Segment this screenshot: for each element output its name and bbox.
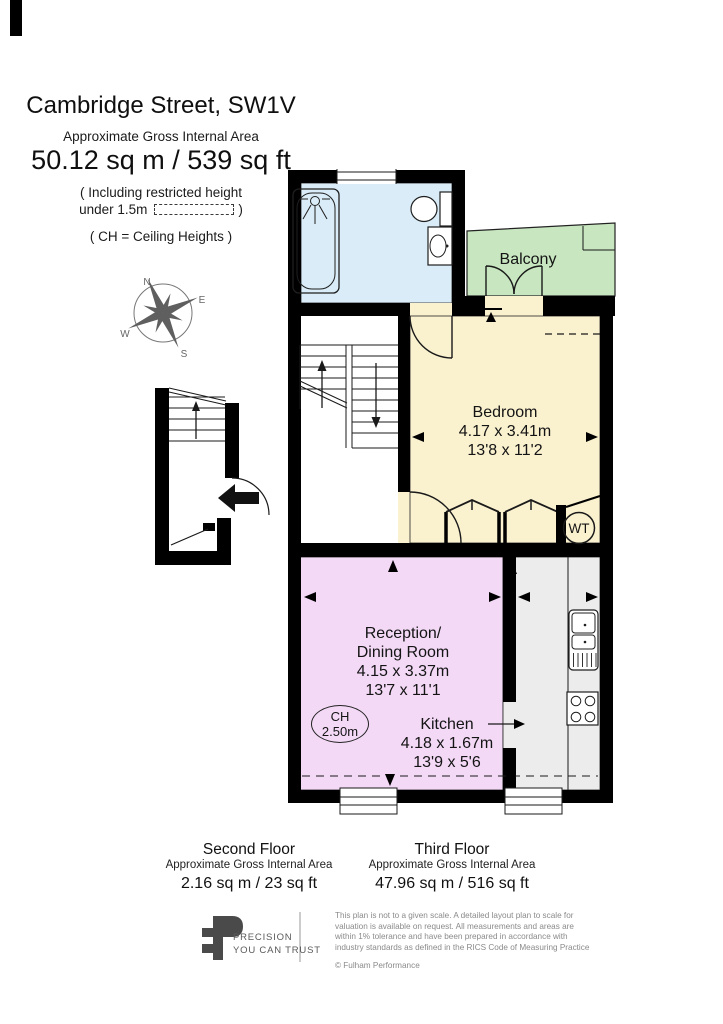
wall-bedroom-bottom xyxy=(398,543,613,557)
bathroom-door-threshold xyxy=(410,303,452,316)
wall-kitchen-divider-upper xyxy=(503,557,516,702)
note-line2-text: under 1.5m xyxy=(79,202,147,217)
stairs-main xyxy=(300,345,398,448)
brand-line1: PRECISION xyxy=(233,931,321,944)
stairs-up-arrow xyxy=(318,360,327,371)
reception-dim-imperial: 13'7 x 11'1 xyxy=(303,681,503,700)
reception-label-line2: Dining Room xyxy=(303,643,503,662)
wall-left xyxy=(288,170,301,803)
miniplan-inner-door-leaf xyxy=(171,529,208,545)
reception-label-line1: Reception/ xyxy=(303,624,503,643)
second-floor-miniplan xyxy=(155,388,269,565)
bathroom-window xyxy=(337,169,396,184)
compass-icon: N E W S xyxy=(113,263,213,363)
corner-mark xyxy=(10,0,22,36)
dashed-legend-box xyxy=(154,204,234,215)
copyright: © Fulham Performance xyxy=(335,961,615,972)
balcony-threshold xyxy=(485,296,543,316)
disclaimer-line3: within 1% tolerance and have been prepar… xyxy=(335,932,615,943)
bedroom-dim-metric: 4.17 x 3.41m xyxy=(410,422,600,441)
disclaimer-line2: valuation is available on request. All m… xyxy=(335,922,615,933)
ceiling-height-line2: 2.50m xyxy=(312,724,368,739)
miniplan-stairs-up-arrow xyxy=(192,401,200,411)
kitchen-sink xyxy=(569,610,598,670)
bedroom-label-block: Bedroom 4.17 x 3.41m 13'8 x 11'2 xyxy=(410,403,600,460)
note-line2-paren: ) xyxy=(238,202,243,217)
entrance-arrow-icon xyxy=(218,484,259,512)
third-floor-area: 47.96 sq m / 516 sq ft xyxy=(331,875,573,893)
compass-north-label: N xyxy=(143,277,150,288)
disclaimer: This plan is not to a given scale. A det… xyxy=(335,911,615,972)
kitchen-dim-imperial: 13'9 x 5'6 xyxy=(392,753,502,772)
kitchen-label-block: Kitchen 4.18 x 1.67m 13'9 x 5'6 xyxy=(392,715,502,772)
third-floor-summary: Third Floor Approximate Gross Internal A… xyxy=(331,841,573,893)
reception-dim-metric: 4.15 x 3.37m xyxy=(303,662,503,681)
compass-east-label: E xyxy=(199,295,206,306)
wall-bottom-seg1 xyxy=(288,790,340,803)
kitchen-label: Kitchen xyxy=(392,715,502,734)
reception-window xyxy=(340,788,397,814)
wall-balcony-left-seg xyxy=(452,296,485,316)
reception-label-block: Reception/ Dining Room 4.15 x 3.37m 13'7… xyxy=(303,624,503,700)
disclaimer-line1: This plan is not to a given scale. A det… xyxy=(335,911,615,922)
third-floor-name: Third Floor xyxy=(331,841,573,858)
compass-west-label: W xyxy=(120,329,130,340)
kitchen-floor xyxy=(503,557,600,790)
restricted-height-note-line1: ( Including restricted height xyxy=(1,184,321,201)
ceiling-height-line1: CH xyxy=(312,709,368,724)
wall-bottom-seg2 xyxy=(397,790,505,803)
total-area: 50.12 sq m / 539 sq ft xyxy=(1,145,321,175)
page-title: Cambridge Street, SW1V xyxy=(1,92,321,120)
bedroom-label: Bedroom xyxy=(410,403,600,422)
ceiling-height-note: ( CH = Ceiling Heights ) xyxy=(1,228,321,245)
bedroom-door-threshold xyxy=(398,492,410,543)
restricted-height-note-line2: under 1.5m) xyxy=(1,201,321,218)
disclaimer-line4: industry standards as defined in the RIC… xyxy=(335,943,615,954)
wall-reception-top xyxy=(288,543,400,557)
brand-line2: YOU CAN TRUST xyxy=(233,944,321,957)
wall-bottom-seg3 xyxy=(562,790,613,803)
ceiling-height-badge: CH 2.50m xyxy=(311,705,369,743)
wall-landing-bedroom xyxy=(398,316,410,492)
balcony-label: Balcony xyxy=(467,250,589,269)
header: Cambridge Street, SW1V Approximate Gross… xyxy=(1,92,321,245)
kitchen-window xyxy=(505,788,562,814)
third-floor-subtitle: Approximate Gross Internal Area xyxy=(331,858,573,872)
miniplan-walls xyxy=(155,388,239,565)
bedroom-dim-imperial: 13'8 x 11'2 xyxy=(410,441,600,460)
sink-basin xyxy=(428,227,452,265)
brand-tagline: PRECISION YOU CAN TRUST xyxy=(233,931,321,957)
compass-south-label: S xyxy=(181,349,188,360)
miniplan-stairs xyxy=(169,388,226,441)
water-tank-label: WT xyxy=(563,521,595,536)
floorplan-page: N E W S Cambridge Street, SW1V Approxima… xyxy=(0,0,723,1024)
kitchen-dim-metric: 4.18 x 1.67m xyxy=(367,734,527,753)
kitchen-hob xyxy=(567,692,598,725)
wall-bathroom-right xyxy=(452,170,465,316)
wall-bathroom-bottom xyxy=(288,303,410,316)
header-subtitle: Approximate Gross Internal Area xyxy=(1,129,321,145)
